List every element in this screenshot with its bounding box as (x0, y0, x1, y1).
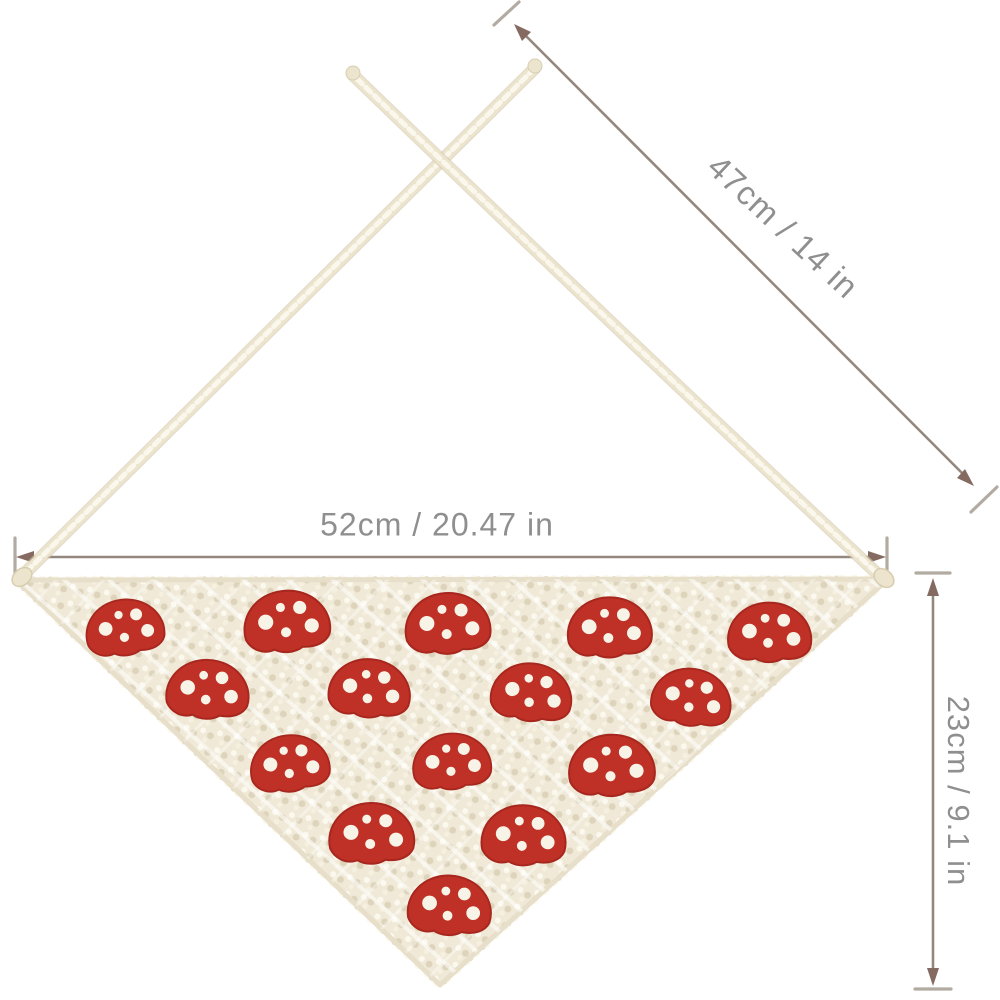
dimension-line (526, 36, 962, 473)
tie-end (528, 59, 542, 73)
mushroom-dot (763, 638, 773, 648)
tie-chain-texture (18, 68, 535, 580)
mushroom-dot (777, 614, 790, 627)
tie-strap-left (18, 59, 542, 580)
product-illustration (0, 0, 1000, 1000)
dimension-strap-length (494, 2, 997, 512)
bandana-triangle (8, 564, 897, 985)
dimension-width (15, 538, 887, 578)
mushroom-dot (761, 614, 770, 623)
dimension-tick (971, 487, 997, 512)
tie-strap-right (346, 66, 884, 580)
dimension-label-height: 23cm / 9.1 in (940, 696, 976, 886)
tie-chain-texture (353, 75, 884, 580)
mushroom-dot (787, 632, 801, 646)
tie-end (346, 66, 360, 80)
arrowhead-up-icon (927, 578, 939, 596)
dimension-tick (494, 2, 519, 25)
mushroom-dot (742, 624, 757, 639)
dimension-label-width: 52cm / 20.47 in (320, 507, 554, 544)
arrowhead-down-icon (927, 968, 939, 986)
product-photo: 47cm / 14 in 52cm / 20.47 in 23cm / 9.1 … (0, 0, 1000, 1000)
